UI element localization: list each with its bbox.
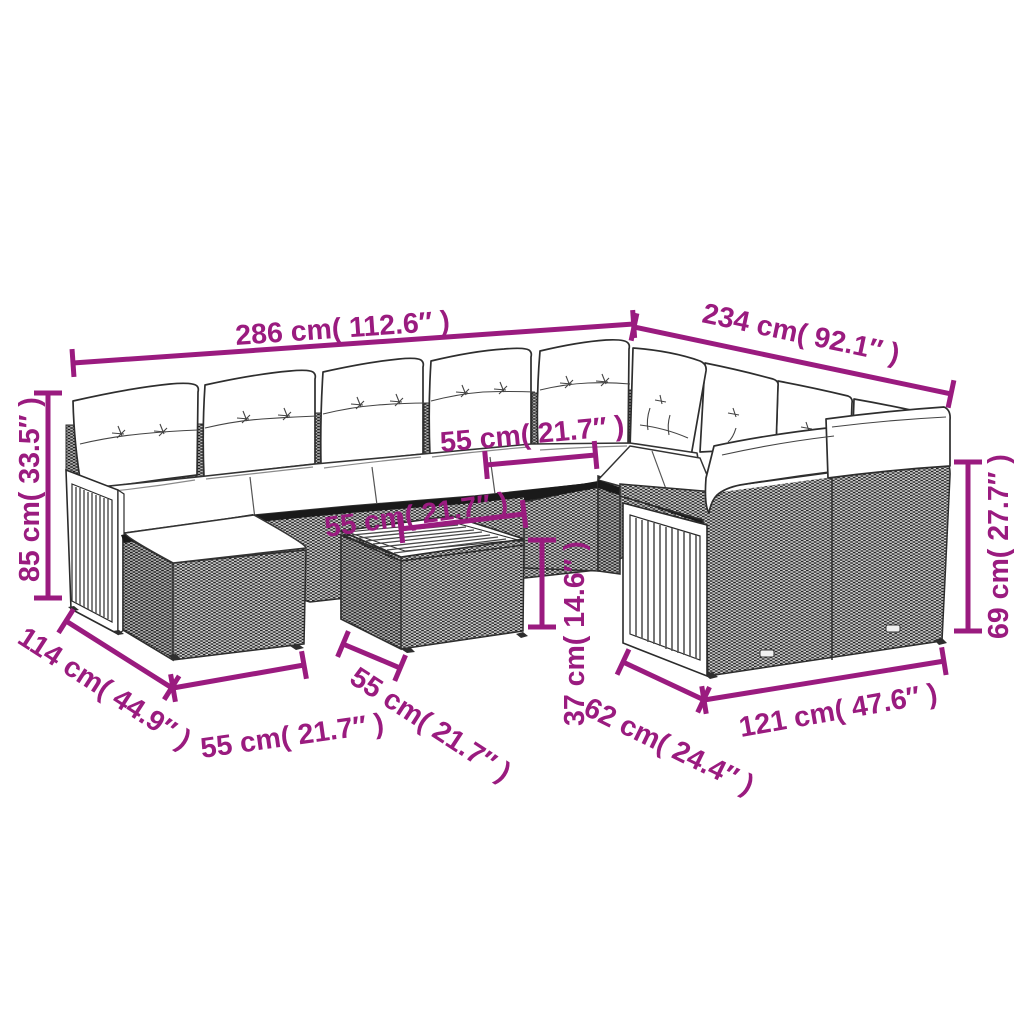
svg-text:37 cm( 14.6″ ): 37 cm( 14.6″ ) (559, 541, 591, 726)
svg-text:69 cm( 27.7″ ): 69 cm( 27.7″ ) (983, 454, 1015, 639)
svg-text:85 cm( 33.5″ ): 85 cm( 33.5″ ) (14, 397, 46, 582)
